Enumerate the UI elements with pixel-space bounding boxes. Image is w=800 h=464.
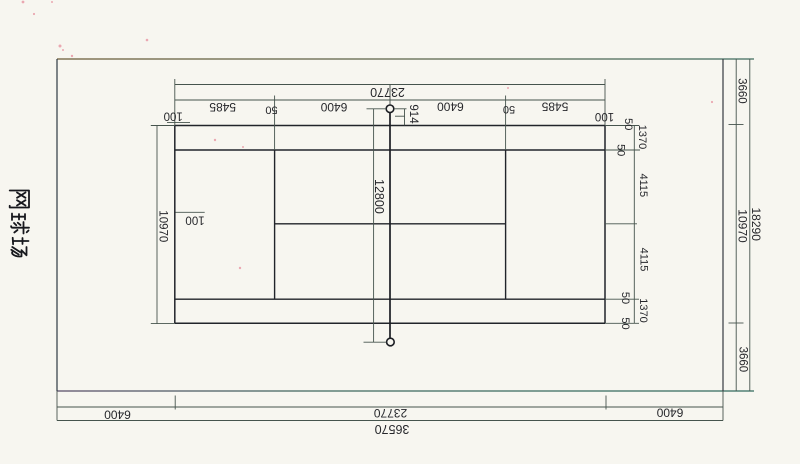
svg-text:3660: 3660: [736, 347, 748, 373]
svg-text:914: 914: [407, 104, 419, 124]
svg-text:5485: 5485: [541, 100, 568, 114]
svg-text:23770: 23770: [373, 406, 407, 420]
svg-text:6400: 6400: [656, 406, 683, 420]
svg-text:50: 50: [503, 103, 515, 115]
svg-text:4115: 4115: [638, 248, 650, 272]
svg-text:10970: 10970: [736, 209, 750, 243]
svg-text:50: 50: [622, 118, 634, 130]
svg-text:50: 50: [615, 144, 627, 156]
svg-text:1370: 1370: [636, 125, 648, 149]
svg-text:5485: 5485: [209, 100, 236, 114]
svg-text:23770: 23770: [370, 85, 405, 99]
svg-text:36570: 36570: [375, 422, 410, 436]
svg-text:10970: 10970: [156, 210, 168, 242]
svg-text:4115: 4115: [637, 173, 649, 197]
svg-text:100: 100: [164, 110, 183, 122]
svg-text:6400: 6400: [437, 100, 464, 114]
svg-text:50: 50: [619, 292, 631, 304]
svg-text:6400: 6400: [104, 408, 131, 422]
svg-text:1370: 1370: [637, 298, 649, 322]
svg-text:100: 100: [185, 213, 204, 225]
svg-text:100: 100: [595, 110, 614, 122]
svg-text:50: 50: [619, 317, 631, 329]
svg-text:18290: 18290: [749, 208, 763, 242]
svg-text:50: 50: [265, 103, 277, 115]
svg-text:3660: 3660: [735, 78, 747, 104]
svg-text:6400: 6400: [320, 100, 347, 114]
svg-text:12800: 12800: [372, 179, 386, 214]
